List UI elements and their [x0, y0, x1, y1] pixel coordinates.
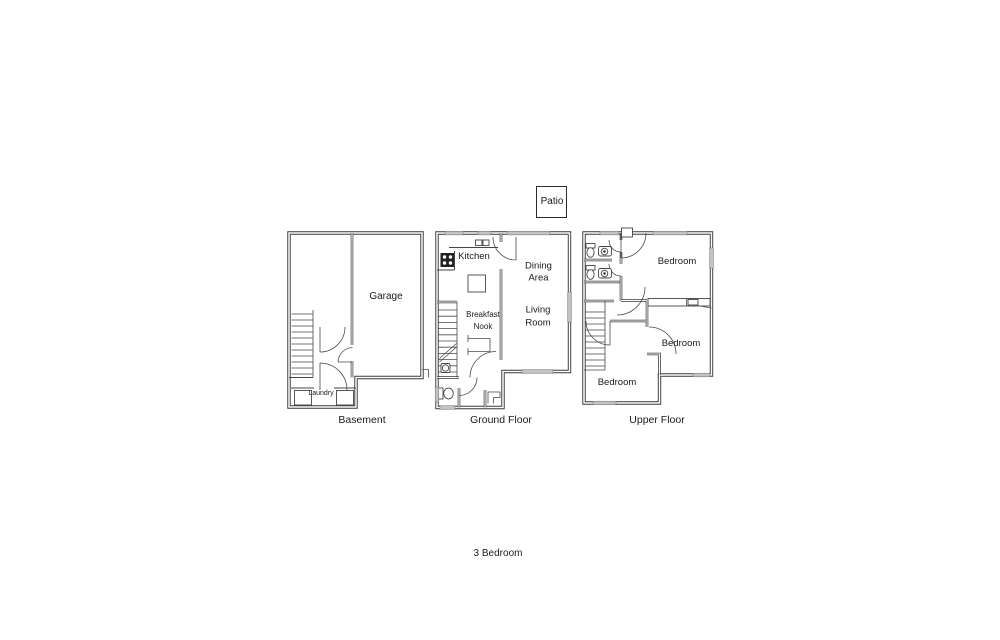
kitchen-island	[468, 275, 486, 292]
basement-door-arcs	[320, 327, 353, 390]
ground-bathroom	[439, 364, 454, 400]
floorplan-canvas: Patio Garage Laundry Kitchen Dining Area…	[0, 0, 1000, 640]
window	[445, 231, 463, 235]
nook-alcove	[468, 335, 490, 355]
window	[568, 292, 572, 322]
basement-title: Basement	[338, 413, 385, 426]
entry-step	[488, 392, 500, 404]
window	[522, 370, 553, 374]
toilet-icon	[439, 388, 444, 399]
upper-floor-title: Upper Floor	[629, 413, 684, 426]
dining-line2: Area	[525, 273, 552, 286]
closet	[648, 299, 712, 309]
floorplan-drawing	[0, 0, 1000, 640]
dining-line1: Dining	[525, 260, 552, 273]
nook-line1: Breakfast	[466, 309, 500, 321]
upper-bathroom-2	[586, 266, 612, 280]
window	[440, 406, 455, 410]
kitchen-label: Kitchen	[458, 250, 490, 263]
laundry-label: Laundry	[308, 387, 333, 400]
living-room-label: Living Room	[525, 305, 550, 330]
kitchen-sink-icon	[476, 240, 483, 246]
basement-plan	[289, 233, 429, 407]
chimney-vent	[622, 228, 633, 237]
window	[435, 387, 439, 402]
window	[600, 231, 619, 235]
window	[710, 248, 714, 268]
upper-stairs	[584, 301, 605, 370]
bedroom3-label: Bedroom	[598, 377, 637, 390]
living-line1: Living	[525, 305, 550, 318]
window	[507, 231, 550, 235]
ground-plan	[435, 231, 571, 409]
dryer-icon	[337, 391, 354, 406]
window	[653, 231, 687, 235]
window	[478, 231, 491, 235]
dining-area-label: Dining Area	[525, 260, 552, 285]
basement-stairs	[292, 310, 314, 378]
plan-caption: 3 Bedroom	[474, 547, 523, 560]
window	[593, 401, 616, 405]
patio-label: Patio	[541, 196, 564, 209]
ground-floor-title: Ground Floor	[470, 413, 532, 426]
stove-icon	[441, 253, 455, 267]
bedroom2-label: Bedroom	[662, 338, 701, 351]
breakfast-nook-label: Breakfast Nook	[466, 309, 500, 333]
bedroom1-label: Bedroom	[658, 255, 697, 268]
upper-bathroom-1	[586, 244, 612, 258]
garage-label: Garage	[369, 291, 402, 304]
window	[693, 373, 710, 377]
nook-line2: Nook	[466, 321, 500, 333]
living-line2: Room	[525, 317, 550, 330]
